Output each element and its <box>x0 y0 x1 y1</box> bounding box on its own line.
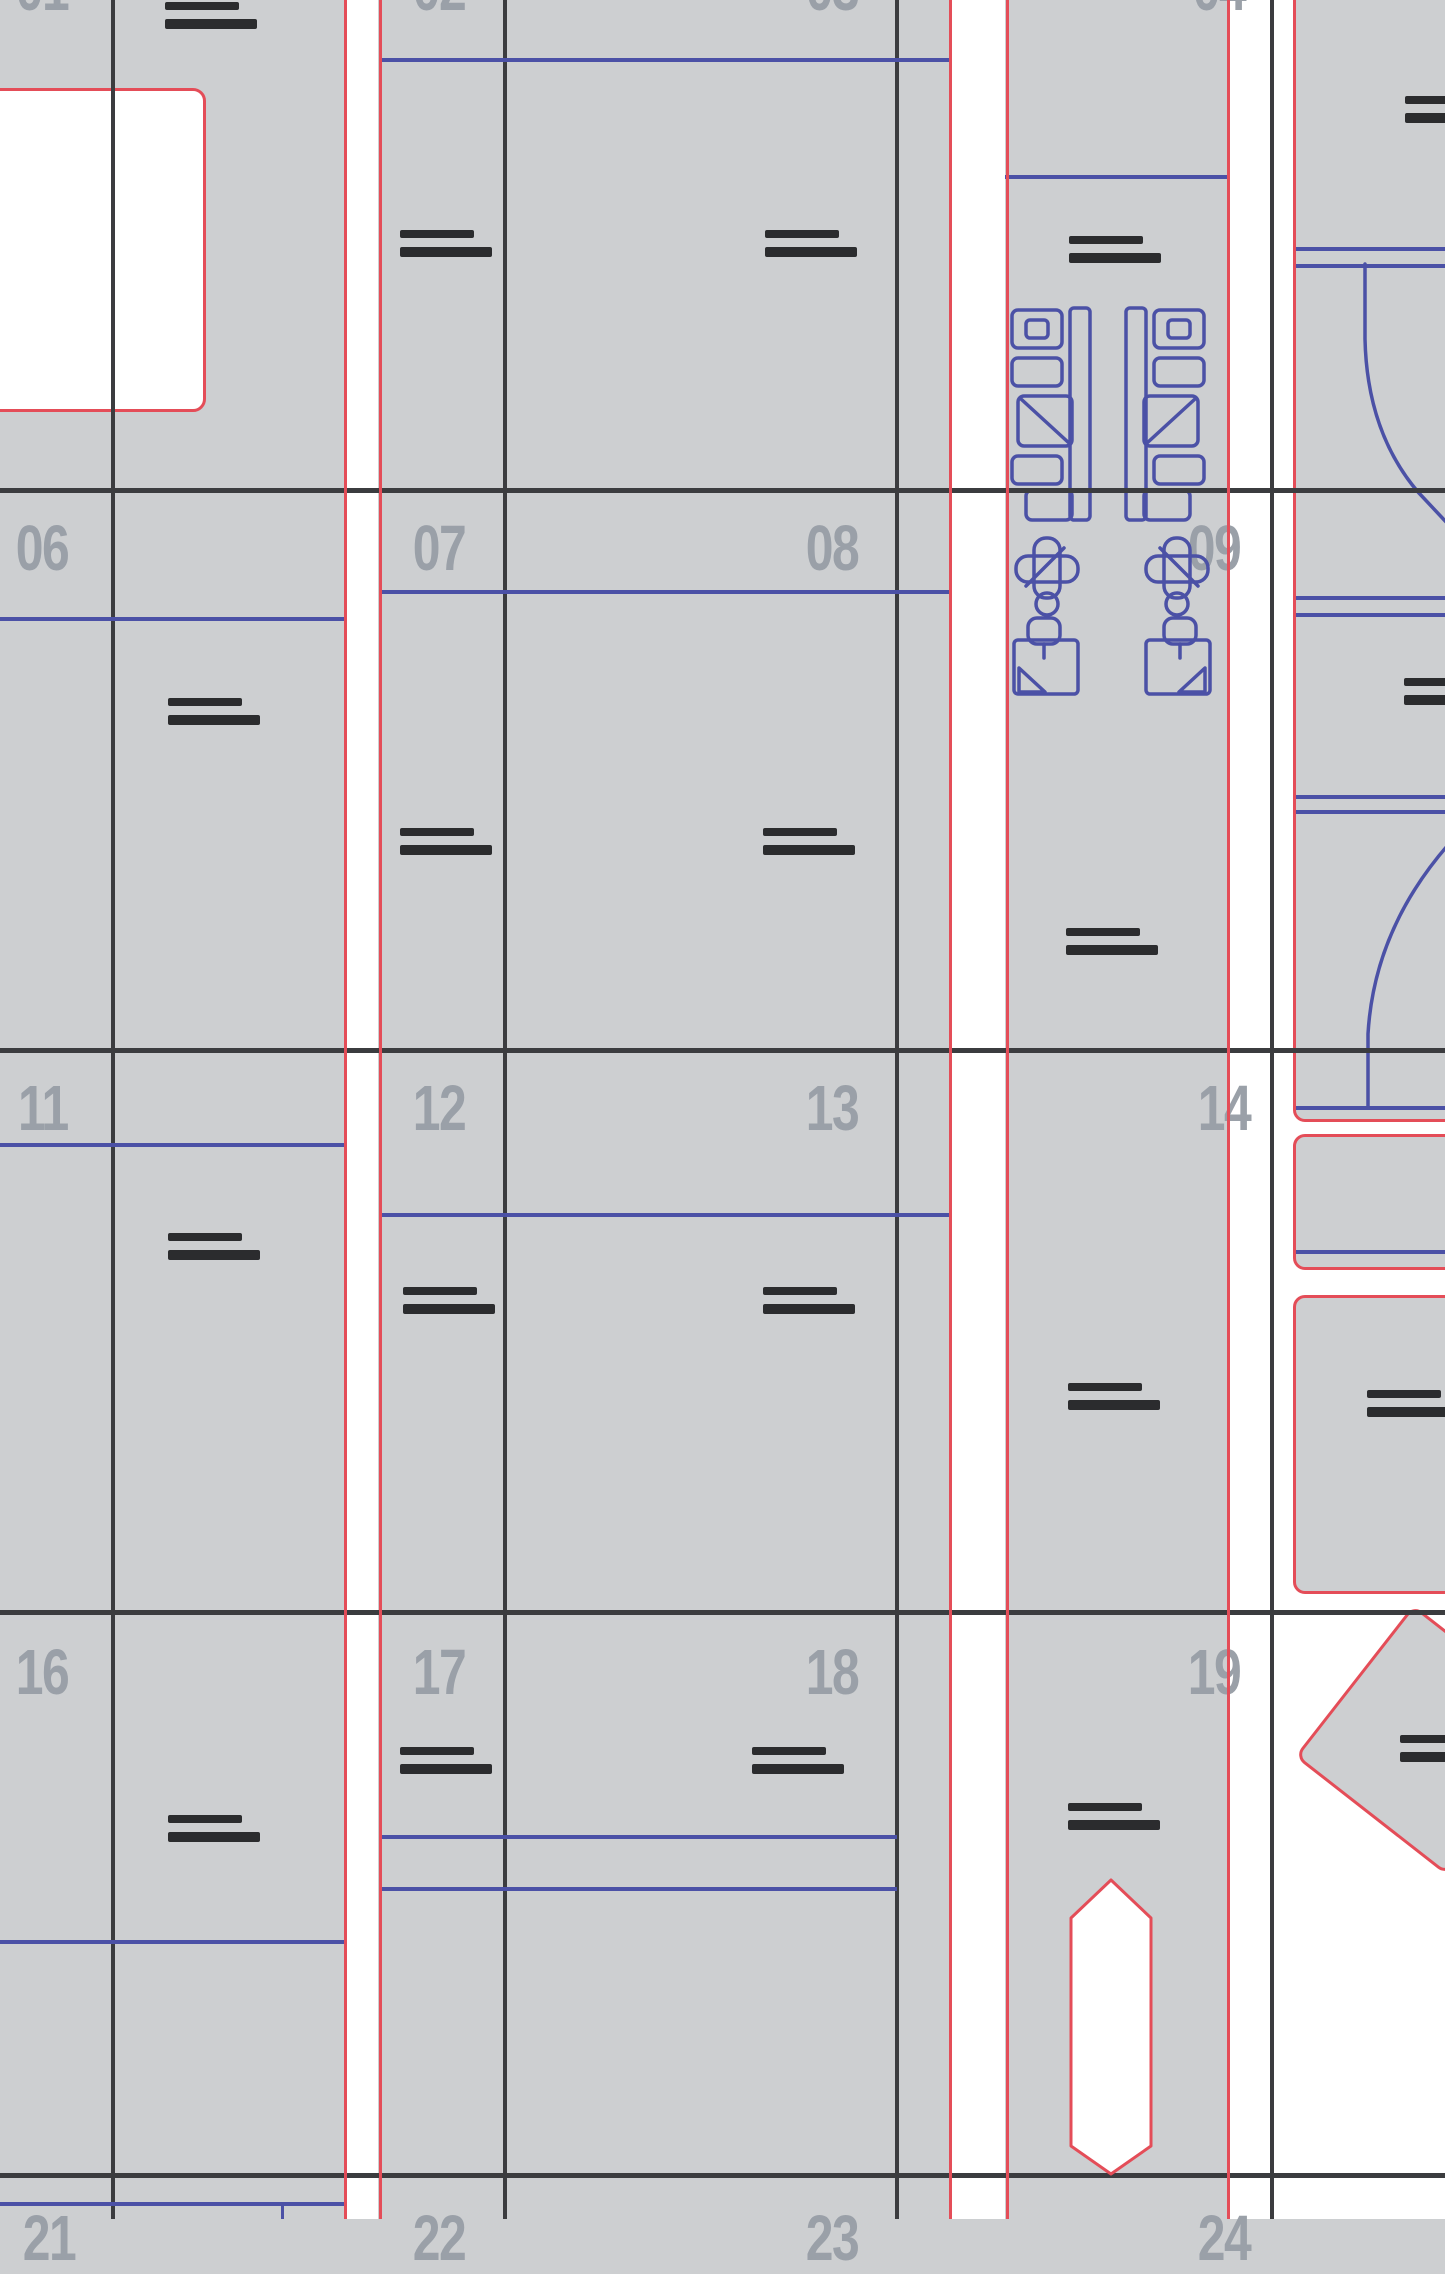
slot-pill-layer <box>0 0 1445 2219</box>
slot-pill <box>1071 1880 1151 2174</box>
cut-sheet-canvas: 0102030406070809111213141617181921222324 <box>0 0 1445 2219</box>
